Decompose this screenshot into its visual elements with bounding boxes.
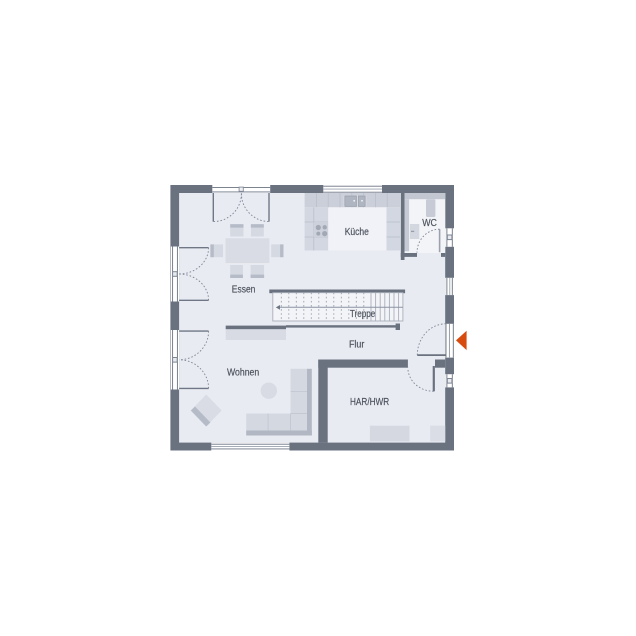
svg-text:WC: WC: [422, 218, 437, 229]
svg-text:Essen: Essen: [232, 285, 256, 296]
svg-text:HAR/HWR: HAR/HWR: [350, 397, 389, 408]
svg-text:Treppe: Treppe: [350, 309, 376, 320]
svg-text:Küche: Küche: [345, 227, 370, 238]
svg-text:Wohnen: Wohnen: [227, 368, 259, 379]
svg-text:Flur: Flur: [349, 340, 365, 351]
